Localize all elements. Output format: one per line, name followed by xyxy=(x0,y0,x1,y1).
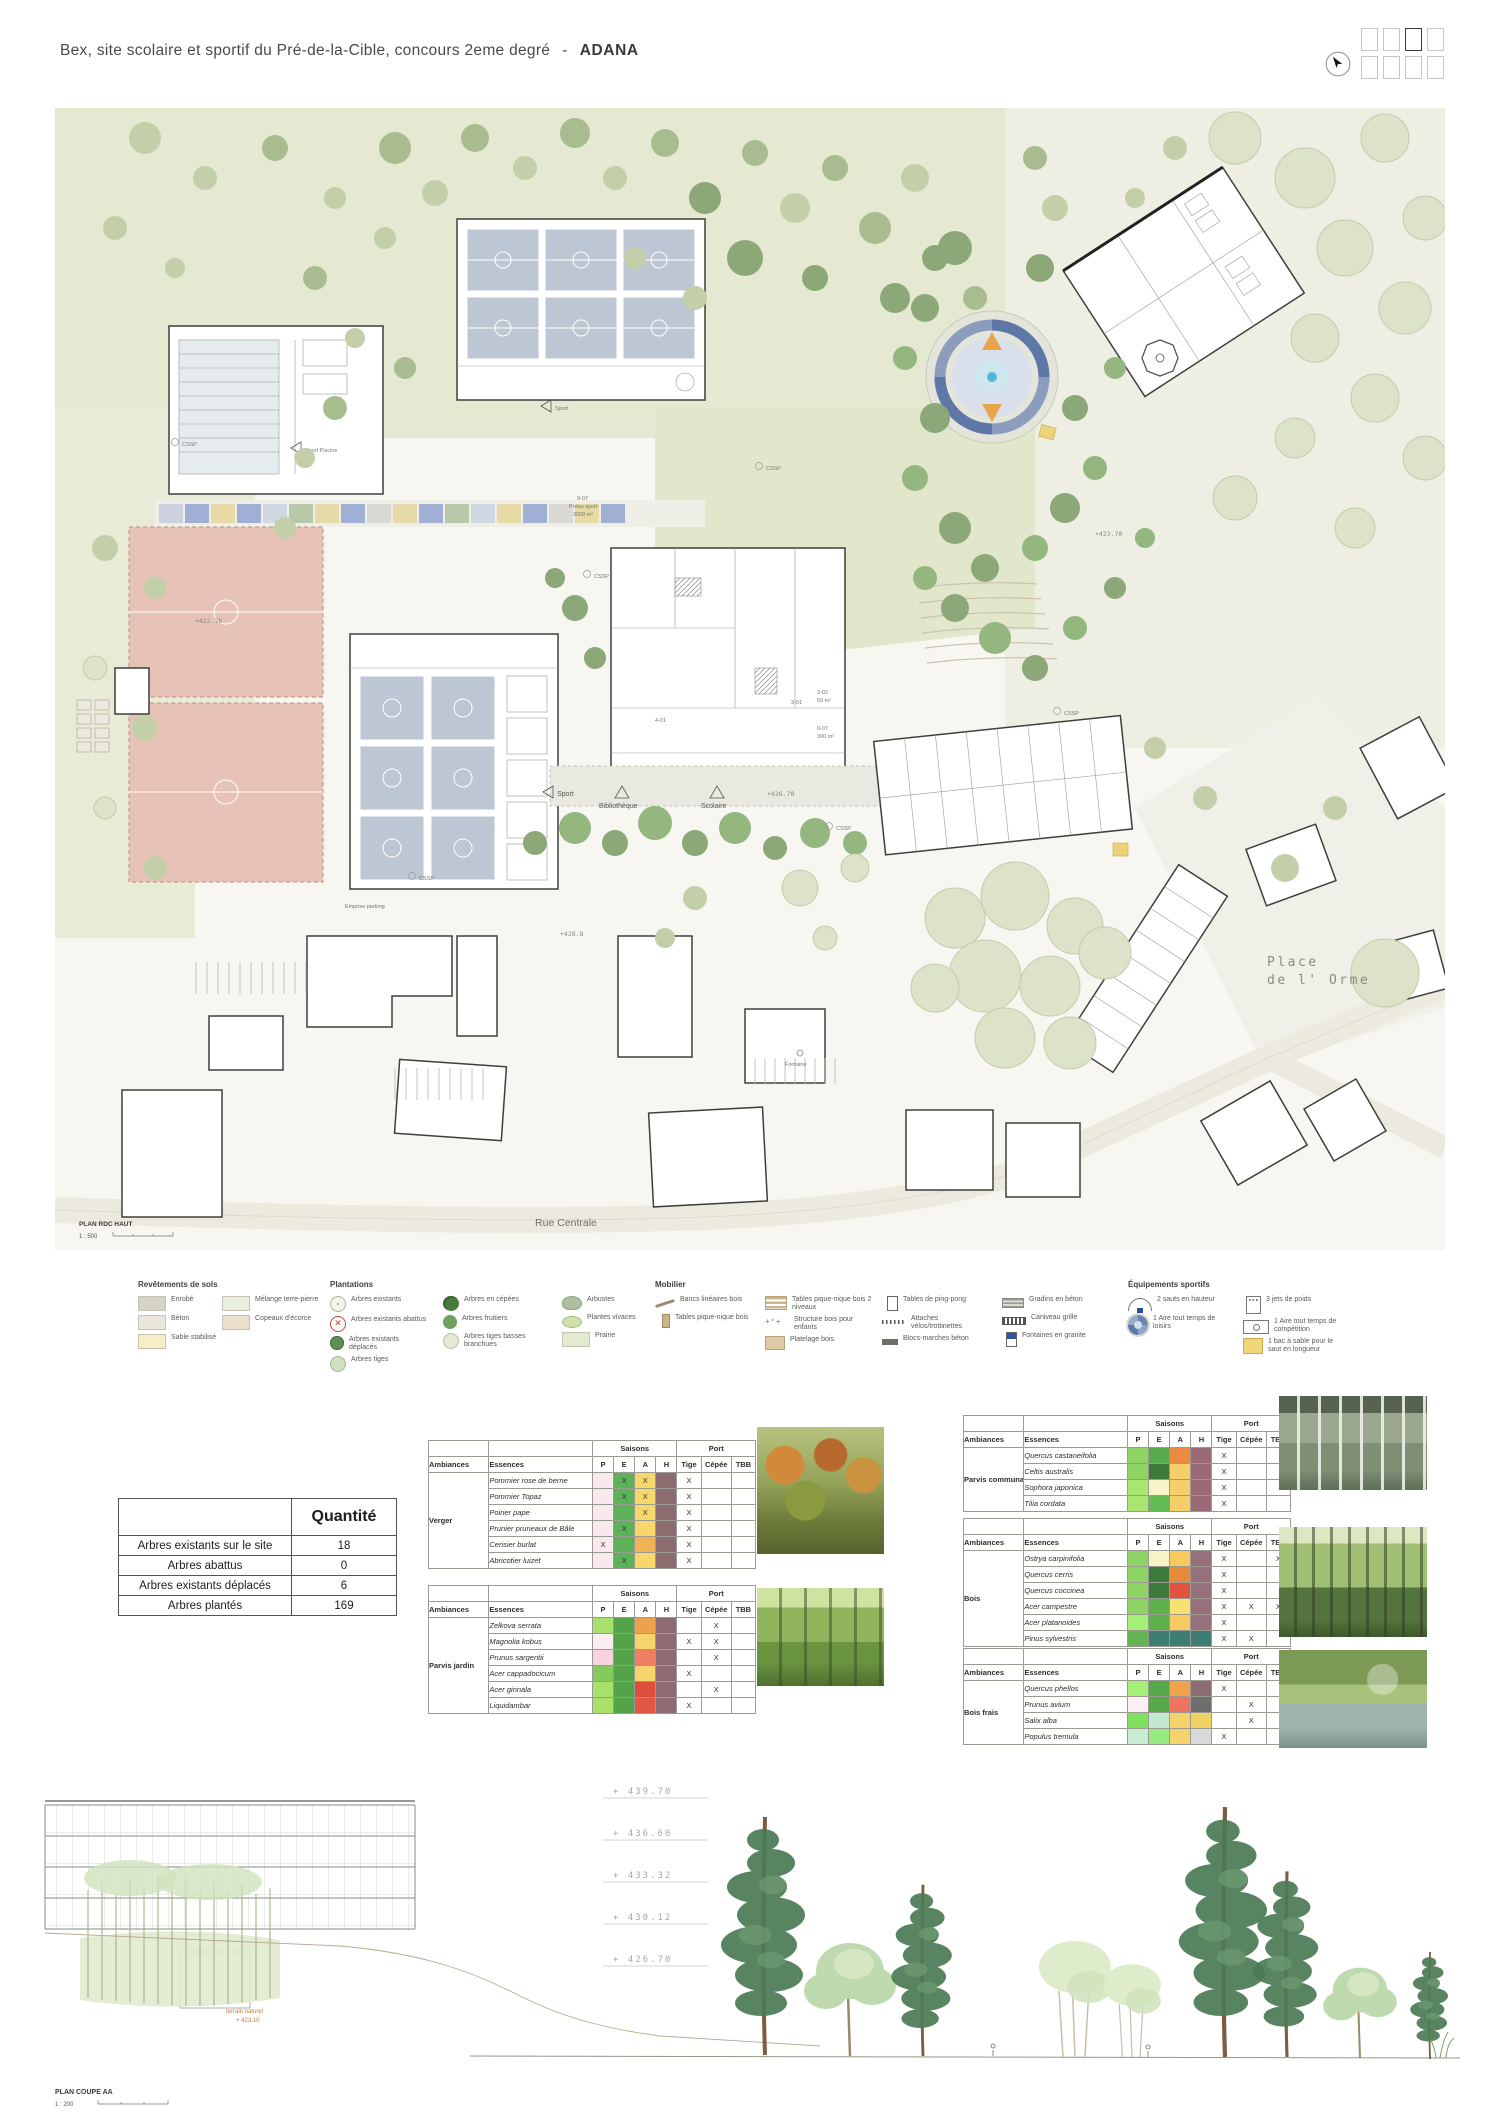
tree-fruitier-icon xyxy=(443,1315,457,1329)
legend-item: Copeaux d'écorce xyxy=(222,1315,318,1330)
plan-caption-title: PLAN RDC HAUT xyxy=(79,1221,132,1228)
season-cell xyxy=(1170,1448,1191,1464)
plan-label-sport-plaza: Sport xyxy=(557,791,574,798)
port-cell xyxy=(731,1521,755,1537)
quantity-row: Arbres abattus0 xyxy=(119,1556,397,1576)
essence-cell: Acer platanoides xyxy=(1024,1615,1128,1631)
legend-item-label: Arbres existants xyxy=(351,1296,401,1304)
season-cell xyxy=(592,1682,613,1698)
blocs-icon xyxy=(882,1339,898,1345)
plan-room-401: 4-01 xyxy=(655,718,666,724)
port-cell: X xyxy=(1236,1631,1266,1647)
essences-header: Essences xyxy=(1024,1432,1128,1448)
ambiances-header: Ambiances xyxy=(964,1432,1024,1448)
jet-poids-icon xyxy=(1246,1296,1261,1314)
legend-item-label: Arbres tiges basses branchues xyxy=(464,1333,544,1349)
port-cell xyxy=(731,1618,755,1634)
port-cell: X xyxy=(677,1489,701,1505)
port-cell xyxy=(731,1634,755,1650)
preau-plaza: Sport Bibliothèque Scolaire +426.70 xyxy=(543,766,915,810)
season-cell: X xyxy=(614,1521,635,1537)
legend-item: 3 jets de poids xyxy=(1243,1296,1354,1314)
species-table-slot-bois-frais: SaisonsPortAmbiancesEssencesPEAHTigeCépé… xyxy=(963,1648,1291,1745)
legend-item: Attaches vélos/trottinettes xyxy=(882,1315,991,1331)
page-thumb-2[interactable] xyxy=(1383,28,1400,51)
legend-item: Tables pique-nique bois xyxy=(655,1314,749,1328)
essence-cell: Populus tremula xyxy=(1024,1729,1128,1745)
plan-label-place-2: de l' Orme xyxy=(1267,973,1370,988)
port-col-TBB: TBB xyxy=(731,1457,755,1473)
legend-column: MobilierBancs linéaires boisTables pique… xyxy=(655,1280,749,1328)
page-thumb-6[interactable] xyxy=(1383,56,1400,79)
port-cell xyxy=(731,1666,755,1682)
season-cell xyxy=(1170,1551,1191,1567)
season-cell xyxy=(592,1698,613,1714)
ambiance-cell: Verger xyxy=(429,1473,489,1569)
legend-item-label: Copeaux d'écorce xyxy=(255,1315,311,1323)
saisons-header: Saisons xyxy=(1127,1649,1212,1665)
quantity-value: 6 xyxy=(292,1576,397,1596)
plan-preau-area: 3000 m² xyxy=(573,512,593,518)
legend-item: 1 Aire tout temps de compétition xyxy=(1243,1318,1354,1334)
tree-tige-icon xyxy=(330,1356,346,1372)
season-cell xyxy=(1191,1551,1212,1567)
essence-cell: Abricotier luizet xyxy=(489,1553,593,1569)
season-cell xyxy=(1127,1697,1148,1713)
port-cell: X xyxy=(1236,1713,1266,1729)
svg-text:CSSP: CSSP xyxy=(594,574,609,580)
photo-bois xyxy=(1279,1527,1427,1637)
legend-column: PlantationsArbres existantsArbres exista… xyxy=(330,1280,429,1372)
season-cell xyxy=(1170,1697,1191,1713)
season-col-A: A xyxy=(1170,1535,1191,1551)
species-table: SaisonsPortAmbiancesEssencesPEAHTigeCépé… xyxy=(963,1518,1291,1647)
season-cell: X xyxy=(614,1489,635,1505)
legend-item: 1 Aire tout temps de loisirs xyxy=(1128,1315,1233,1335)
saisons-header: Saisons xyxy=(592,1441,677,1457)
season-cell xyxy=(635,1650,656,1666)
plan-preau-code: 9-07 xyxy=(577,496,588,502)
legend-item: Gradins en béton xyxy=(1002,1296,1086,1310)
legend-section-title xyxy=(1243,1280,1354,1291)
season-cell xyxy=(1191,1464,1212,1480)
section-bamboo xyxy=(80,1860,280,2007)
season-cell xyxy=(656,1505,677,1521)
season-cell xyxy=(1170,1615,1191,1631)
season-cell xyxy=(614,1666,635,1682)
port-cell: X xyxy=(701,1650,731,1666)
port-cell: X xyxy=(677,1553,701,1569)
legend-item-label: Mélange terre-pierre xyxy=(255,1296,318,1304)
season-cell xyxy=(656,1553,677,1569)
season-cell xyxy=(592,1489,613,1505)
legend-item: 2 sauts en hauteur xyxy=(1128,1296,1233,1311)
port-cell: X xyxy=(1212,1729,1236,1745)
plan-level-42370: +423.70 xyxy=(1095,530,1122,538)
season-cell xyxy=(1170,1729,1191,1745)
season-cell xyxy=(1191,1631,1212,1647)
competition-board: Bex, site scolaire et sportif du Pré-de-… xyxy=(0,0,1500,2124)
pingpong-icon xyxy=(887,1296,898,1311)
essence-cell: Liquidambar xyxy=(489,1698,593,1714)
port-cell xyxy=(731,1553,755,1569)
season-cell xyxy=(1149,1615,1170,1631)
season-cell xyxy=(635,1537,656,1553)
legend-item: Tables de ping-pong xyxy=(882,1296,991,1311)
essence-cell: Acer ginnala xyxy=(489,1682,593,1698)
legend-item-label: Tables pique-nique bois 2 niveaux xyxy=(792,1296,872,1312)
port-cell xyxy=(731,1650,755,1666)
legend-item-label: Arbustes xyxy=(587,1296,615,1304)
season-col-E: E xyxy=(614,1457,635,1473)
saisons-header: Saisons xyxy=(1127,1416,1212,1432)
port-cell: X xyxy=(1212,1496,1236,1512)
season-cell xyxy=(1149,1448,1170,1464)
legend-column: 3 jets de poids1 Aire tout temps de comp… xyxy=(1243,1280,1354,1354)
terrain-label: terrain naturel xyxy=(226,2009,263,2015)
season-cell: X xyxy=(635,1505,656,1521)
essence-cell: Prunier pruneaux de Bâle xyxy=(489,1521,593,1537)
level-430-12: + 430.12 xyxy=(613,1913,672,1923)
port-cell xyxy=(1266,1496,1290,1512)
legend-column: Tables de ping-pongAttaches vélos/trotti… xyxy=(882,1280,991,1349)
port-cell xyxy=(701,1521,731,1537)
season-col-H: H xyxy=(1191,1432,1212,1448)
port-cell: X xyxy=(1212,1448,1236,1464)
quantity-header: Quantité xyxy=(292,1499,397,1536)
season-col-P: P xyxy=(1127,1665,1148,1681)
ambiance-cell: Bois frais xyxy=(964,1681,1024,1745)
quantity-value: 0 xyxy=(292,1556,397,1576)
essence-cell: Acer cappadocicum xyxy=(489,1666,593,1682)
season-cell xyxy=(1170,1496,1191,1512)
port-cell xyxy=(731,1537,755,1553)
legend-item-label: Arbres fruitiers xyxy=(462,1315,508,1323)
structure-icon xyxy=(765,1316,789,1329)
season-cell xyxy=(592,1666,613,1682)
season-cell xyxy=(1149,1631,1170,1647)
page-thumb-4[interactable] xyxy=(1427,28,1444,51)
port-cell xyxy=(1236,1464,1266,1480)
building-sports-hall-north: Sport xyxy=(457,219,705,412)
season-cell xyxy=(1191,1448,1212,1464)
port-cell xyxy=(701,1553,731,1569)
legend-item: Tables pique-nique bois 2 niveaux xyxy=(765,1296,874,1312)
essence-cell: Pommier Topaz xyxy=(489,1489,593,1505)
plan-caption-scale: 1 : 500 xyxy=(79,1234,98,1240)
ambiances-header: Ambiances xyxy=(429,1602,489,1618)
port-cell xyxy=(731,1489,755,1505)
legend-item-label: Arbres en cépées xyxy=(464,1296,519,1304)
season-col-P: P xyxy=(592,1602,613,1618)
essence-cell: Quercus cerris xyxy=(1024,1567,1128,1583)
species-table: SaisonsPortAmbiancesEssencesPEAHTigeCépé… xyxy=(963,1648,1291,1745)
legend-item: Mélange terre-pierre xyxy=(222,1296,318,1311)
tree-deplace-icon xyxy=(330,1336,344,1350)
season-cell xyxy=(1127,1729,1148,1745)
quantity-label: Arbres existants sur le site xyxy=(119,1536,292,1556)
plan-label-sport-north: Sport xyxy=(555,406,569,412)
plan-label-place-1: Place xyxy=(1267,955,1319,970)
season-cell: X xyxy=(635,1473,656,1489)
essence-cell: Prunus sargentii xyxy=(489,1650,593,1666)
svg-text:50 m²: 50 m² xyxy=(817,698,831,704)
season-cell xyxy=(656,1698,677,1714)
ambiances-header: Ambiances xyxy=(964,1665,1024,1681)
legend-item-label: 1 Aire tout temps de loisirs xyxy=(1153,1315,1233,1331)
season-cell xyxy=(635,1634,656,1650)
legend-section-title xyxy=(562,1280,636,1291)
port-cell: X xyxy=(677,1634,701,1650)
essence-cell: Quercus coccinea xyxy=(1024,1583,1128,1599)
port-cell xyxy=(1212,1713,1236,1729)
building-sport-piscine: Sport Piscine xyxy=(169,326,383,494)
svg-text:CSSP: CSSP xyxy=(836,826,851,832)
season-cell xyxy=(614,1682,635,1698)
plan-room-007: 0-07 xyxy=(817,726,828,732)
season-cell xyxy=(1149,1464,1170,1480)
season-cell xyxy=(656,1473,677,1489)
season-cell xyxy=(592,1505,613,1521)
season-cell xyxy=(656,1650,677,1666)
port-cell: X xyxy=(1212,1551,1236,1567)
legend-item-label: Caniveau grille xyxy=(1031,1314,1077,1322)
platelage-icon xyxy=(765,1336,785,1350)
essence-cell: Prunus avium xyxy=(1024,1697,1128,1713)
level-439-70: + 439.70 xyxy=(613,1787,672,1797)
legend-item-label: 1 Aire tout temps de compétition xyxy=(1274,1318,1354,1334)
legend-item-label: Gradins en béton xyxy=(1029,1296,1083,1304)
season-cell xyxy=(635,1521,656,1537)
season-cell xyxy=(1149,1681,1170,1697)
port-col-Tige: Tige xyxy=(1212,1665,1236,1681)
saisons-header: Saisons xyxy=(1127,1519,1212,1535)
essence-cell: Ostrya carpinifolia xyxy=(1024,1551,1128,1567)
team-name: ADANA xyxy=(580,42,639,59)
tree-existant-icon xyxy=(330,1296,346,1312)
season-col-P: P xyxy=(1127,1432,1148,1448)
legend-item: Arbres existants abattus xyxy=(330,1316,429,1332)
port-cell xyxy=(701,1698,731,1714)
section-ground xyxy=(470,2055,1460,2058)
season-cell xyxy=(1127,1496,1148,1512)
port-cell xyxy=(1236,1496,1266,1512)
port-col-Tige: Tige xyxy=(677,1457,701,1473)
photo-parvis-jardin xyxy=(757,1588,884,1686)
quantity-label: Arbres abattus xyxy=(119,1556,292,1576)
species-table-slot-bois: SaisonsPortAmbiancesEssencesPEAHTigeCépé… xyxy=(963,1518,1291,1647)
port-cell: X xyxy=(701,1682,731,1698)
season-cell xyxy=(1127,1713,1148,1729)
legend-item-label: Prairie xyxy=(595,1332,615,1340)
legend-item: Blocs-marches béton xyxy=(882,1335,991,1349)
legend-section-title: Revêtements de sols xyxy=(138,1280,218,1291)
port-col-Tige: Tige xyxy=(1212,1535,1236,1551)
port-cell: X xyxy=(1212,1631,1236,1647)
essence-cell: Celtis australis xyxy=(1024,1464,1128,1480)
season-cell: X xyxy=(592,1537,613,1553)
essences-header: Essences xyxy=(489,1602,593,1618)
season-cell xyxy=(1170,1681,1191,1697)
photo-bois-frais xyxy=(1279,1650,1427,1748)
sand-pit-2 xyxy=(1113,843,1128,856)
season-cell xyxy=(656,1489,677,1505)
season-cell xyxy=(1149,1567,1170,1583)
port-col-Cépée: Cépée xyxy=(701,1457,731,1473)
port-col-Cépée: Cépée xyxy=(701,1602,731,1618)
season-col-P: P xyxy=(592,1457,613,1473)
season-cell xyxy=(635,1682,656,1698)
port-cell xyxy=(701,1537,731,1553)
season-cell xyxy=(1149,1697,1170,1713)
arbuste-icon xyxy=(562,1296,582,1310)
tree-abattu-icon xyxy=(330,1316,346,1332)
season-cell xyxy=(656,1634,677,1650)
table-pn2-icon xyxy=(765,1296,787,1310)
port-cell xyxy=(1212,1697,1236,1713)
season-col-P: P xyxy=(1127,1535,1148,1551)
port-cell: X xyxy=(701,1634,731,1650)
plan-room-301: 3-01 xyxy=(791,700,802,706)
season-col-H: H xyxy=(656,1457,677,1473)
section-svg: terrain naturel + 423.10 + 439.70 + 436.… xyxy=(40,1770,1460,2124)
port-cell: X xyxy=(677,1473,701,1489)
svg-text:CSSP: CSSP xyxy=(419,876,434,882)
quantity-row: Arbres plantés169 xyxy=(119,1596,397,1616)
port-cell: X xyxy=(1212,1681,1236,1697)
essence-cell: Quercus castaneifolia xyxy=(1024,1448,1128,1464)
port-col-Tige: Tige xyxy=(1212,1432,1236,1448)
season-cell xyxy=(1149,1583,1170,1599)
season-cell xyxy=(1191,1713,1212,1729)
season-cell xyxy=(1149,1729,1170,1745)
port-cell xyxy=(731,1473,755,1489)
season-cell xyxy=(614,1698,635,1714)
season-col-A: A xyxy=(1170,1432,1191,1448)
season-cell xyxy=(1170,1567,1191,1583)
season-cell xyxy=(614,1537,635,1553)
season-cell xyxy=(592,1618,613,1634)
season-cell xyxy=(1170,1583,1191,1599)
caniveau-icon xyxy=(1002,1317,1026,1325)
section-caption-scale: 1 : 200 xyxy=(55,2102,74,2108)
port-cell: X xyxy=(677,1521,701,1537)
legend-item-label: 3 jets de poids xyxy=(1266,1296,1311,1304)
port-cell xyxy=(701,1489,731,1505)
essence-cell: Zelkova serrata xyxy=(489,1618,593,1634)
legend-item: Arbres existants xyxy=(330,1296,429,1312)
board-pager xyxy=(1325,28,1444,79)
page-thumb-7[interactable] xyxy=(1405,56,1422,79)
port-cell xyxy=(1236,1448,1266,1464)
legend-column: ArbustesPlantes vivacesPrairie xyxy=(562,1280,636,1347)
ambiance-cell: Bois xyxy=(964,1551,1024,1647)
saut-hauteur-icon xyxy=(1128,1298,1152,1311)
season-col-H: H xyxy=(1191,1535,1212,1551)
svg-text:CSSP: CSSP xyxy=(182,442,197,448)
legend-section-title xyxy=(1002,1280,1086,1291)
season-cell xyxy=(1191,1567,1212,1583)
page-thumb-8[interactable] xyxy=(1427,56,1444,79)
plan-room-202: 2-02 xyxy=(817,690,828,696)
species-table: SaisonsPortAmbiancesEssencesPEAHTigeCépé… xyxy=(428,1440,756,1569)
legend-section-title xyxy=(443,1280,544,1291)
quantity-label: Arbres existants déplacés xyxy=(119,1576,292,1596)
port-cell: X xyxy=(677,1666,701,1682)
season-cell xyxy=(1149,1599,1170,1615)
port-cell: X xyxy=(1212,1480,1236,1496)
port-cell xyxy=(1236,1729,1266,1745)
species-row: BoisOstrya carpinifoliaXX xyxy=(964,1551,1291,1567)
building-school-new: 4-01 3-01 2-02 50 m² 0-07 300 m² xyxy=(611,548,845,771)
legend-item: Enrobé xyxy=(138,1296,218,1311)
svg-text:CSSP: CSSP xyxy=(1064,711,1079,717)
essences-header: Essences xyxy=(489,1457,593,1473)
season-cell xyxy=(1170,1464,1191,1480)
port-cell xyxy=(1236,1615,1266,1631)
legend-item-label: Enrobé xyxy=(171,1296,194,1304)
season-cell xyxy=(656,1666,677,1682)
swatch-icon xyxy=(138,1315,166,1330)
gradins-icon xyxy=(1002,1298,1024,1308)
plan-label-rue-centrale: Rue Centrale xyxy=(535,1217,597,1229)
port-cell xyxy=(1236,1567,1266,1583)
plan-level-42276: +422.76 xyxy=(195,617,222,625)
legend-item: Fontaines en granite xyxy=(1002,1332,1086,1347)
legend-column: Arbres en cépéesArbres fruitiersArbres t… xyxy=(443,1280,544,1349)
photo-verger xyxy=(757,1427,884,1554)
ambiances-header: Ambiances xyxy=(429,1457,489,1473)
season-cell xyxy=(592,1521,613,1537)
season-cell xyxy=(656,1521,677,1537)
north-arrow-icon xyxy=(1325,51,1351,77)
species-row: Bois fraisQuercus phellosX xyxy=(964,1681,1291,1697)
species-table-slot-parvis-jardin: SaisonsPortAmbiancesEssencesPEAHTigeCépé… xyxy=(428,1585,756,1714)
port-col-Cépée: Cépée xyxy=(1236,1535,1266,1551)
quantity-row: Arbres existants sur le site18 xyxy=(119,1536,397,1556)
port-col-TBB: TBB xyxy=(731,1602,755,1618)
port-cell: X xyxy=(1236,1599,1266,1615)
swatch-icon xyxy=(222,1315,250,1330)
swatch-icon xyxy=(138,1334,166,1349)
season-cell xyxy=(1149,1713,1170,1729)
port-cell xyxy=(1236,1583,1266,1599)
legend-section-title: Équipements sportifs xyxy=(1128,1280,1233,1291)
legend-item-label: 2 sauts en hauteur xyxy=(1157,1296,1215,1304)
season-cell xyxy=(1191,1615,1212,1631)
saisons-header: Saisons xyxy=(592,1586,677,1602)
page-thumb-5[interactable] xyxy=(1361,56,1378,79)
quantity-value: 18 xyxy=(292,1536,397,1556)
port-cell xyxy=(701,1666,731,1682)
legend-item: Arbres en cépées xyxy=(443,1296,544,1311)
legend-column: Tables pique-nique bois 2 niveauxStructu… xyxy=(765,1280,874,1350)
page-thumb-1[interactable] xyxy=(1361,28,1378,51)
season-cell xyxy=(1191,1599,1212,1615)
plan-label-emprise-parking: Emprise parking xyxy=(345,904,385,910)
legend-section-title xyxy=(765,1280,874,1291)
page-thumb-3[interactable] xyxy=(1405,28,1422,51)
season-cell: X xyxy=(635,1489,656,1505)
level-436-60: + 436.60 xyxy=(613,1829,672,1839)
species-row: VergerPommier rose de berneXXX xyxy=(429,1473,756,1489)
port-cell: X xyxy=(1212,1599,1236,1615)
season-cell xyxy=(614,1505,635,1521)
season-cell xyxy=(1127,1681,1148,1697)
photo-parvis-communal xyxy=(1279,1396,1427,1490)
level-433-32: + 433.32 xyxy=(613,1871,672,1881)
port-cell xyxy=(1236,1681,1266,1697)
